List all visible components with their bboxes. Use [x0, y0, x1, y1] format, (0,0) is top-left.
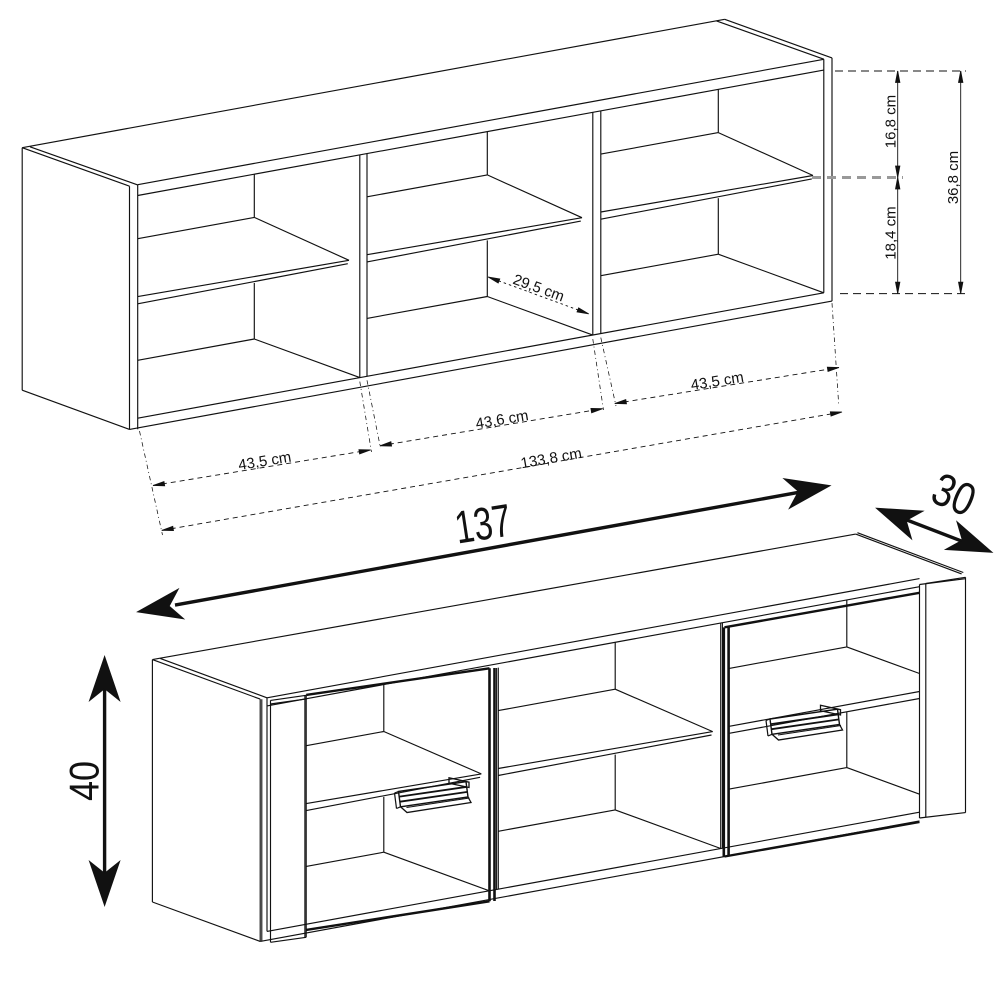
svg-text:40: 40 — [60, 761, 107, 801]
svg-text:36,8 cm: 36,8 cm — [945, 151, 962, 204]
svg-text:16,8 cm: 16,8 cm — [882, 95, 899, 148]
svg-text:18,4 cm: 18,4 cm — [882, 206, 899, 259]
svg-text:137: 137 — [451, 494, 514, 554]
